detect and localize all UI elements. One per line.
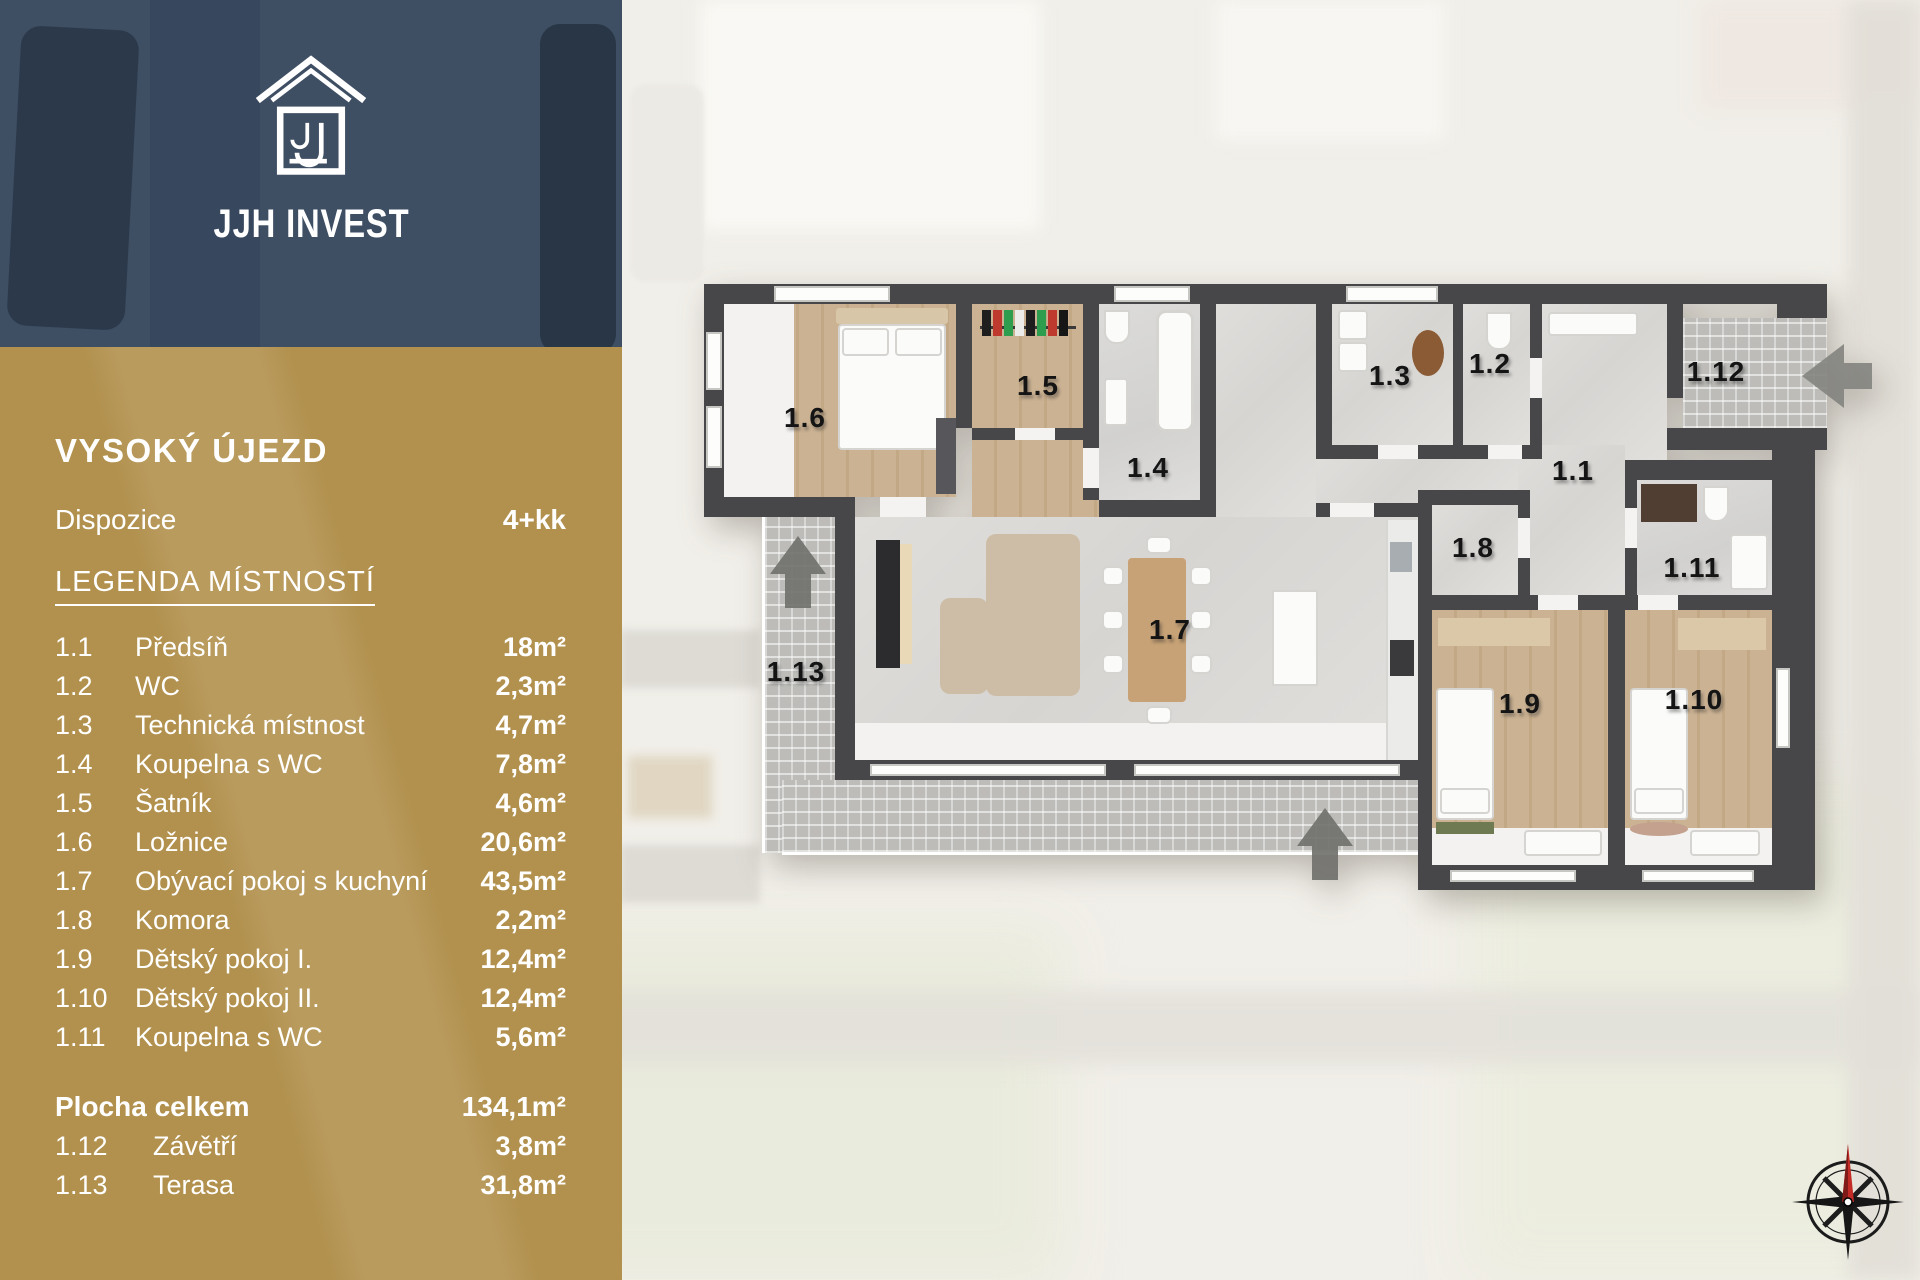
toilet xyxy=(1703,486,1729,522)
garden-entry-arrow-icon xyxy=(1297,808,1353,846)
house-logo-icon xyxy=(236,52,386,192)
room-1-7-window-sill xyxy=(855,723,1432,760)
brand-name: JJH INVEST xyxy=(213,202,409,247)
room-area: 18m² xyxy=(503,628,566,667)
window xyxy=(870,764,1106,776)
chair xyxy=(1102,610,1124,630)
wall xyxy=(1316,304,1332,445)
sidebar-logo-panel: JJH INVEST xyxy=(0,0,622,347)
legend-row: 1.9Dětský pokoj I.12,4m² xyxy=(55,940,566,979)
flyer-page: JJH INVEST VYSOKÝ ÚJEZD Dispozice 4+kk L… xyxy=(0,0,1920,1280)
window xyxy=(706,332,722,390)
main-entry-arrow-icon xyxy=(1802,344,1844,408)
aerial-roof xyxy=(700,0,1040,230)
stove xyxy=(1390,640,1414,676)
room-id: 1.12 xyxy=(55,1127,135,1166)
hanging-clothes xyxy=(1004,310,1013,336)
bathtub xyxy=(1156,310,1194,432)
toilet xyxy=(1486,312,1512,350)
room-label-1-6: 1.6 xyxy=(784,402,826,434)
sidebar-legend-panel: VYSOKÝ ÚJEZD Dispozice 4+kk LEGENDA MÍST… xyxy=(0,347,622,1280)
hall-cabinet xyxy=(1548,312,1638,336)
door-opening xyxy=(1015,428,1055,440)
room-id: 1.2 xyxy=(55,667,135,706)
aerial-car xyxy=(630,84,704,282)
sofa-chaise xyxy=(940,598,988,694)
room-id: 1.5 xyxy=(55,784,135,823)
room-label-1-9: 1.9 xyxy=(1499,688,1541,720)
wall xyxy=(1772,450,1815,865)
door-opening xyxy=(1518,518,1530,558)
room-label-1-5: 1.5 xyxy=(1017,370,1059,402)
legend-row: 1.7Obývací pokoj s kuchyní43,5m² xyxy=(55,862,566,901)
sofa xyxy=(986,534,1080,696)
hanging-clothes xyxy=(1037,310,1046,336)
legend-row: 1.2WC2,3m² xyxy=(55,667,566,706)
door-opening xyxy=(1083,448,1099,488)
window xyxy=(706,406,722,468)
room-area: 43,5m² xyxy=(480,862,566,901)
room-id: 1.10 xyxy=(55,979,135,1018)
room-area: 4,7m² xyxy=(495,706,566,745)
washbasin xyxy=(1104,378,1128,426)
wall xyxy=(1432,595,1815,610)
wardrobe xyxy=(936,418,956,494)
room-id: 1.4 xyxy=(55,745,135,784)
room-name: Obývací pokoj s kuchyní xyxy=(135,862,480,901)
hanging-clothes xyxy=(1015,310,1024,336)
legend-row-outdoor: 1.13Terasa31,8m² xyxy=(55,1166,566,1205)
dryer xyxy=(1338,342,1368,372)
kitchen-island xyxy=(1272,590,1318,686)
wall xyxy=(956,304,972,428)
legend-row: 1.10Dětský pokoj II.12,4m² xyxy=(55,979,566,1018)
bed-headboard xyxy=(836,308,948,324)
door-opening xyxy=(1330,503,1374,517)
room-1-6-entry xyxy=(724,304,794,497)
wall xyxy=(1625,460,1815,480)
hanging-clothes xyxy=(1059,310,1068,336)
room-id: 1.11 xyxy=(55,1018,135,1057)
room-name: Ložnice xyxy=(135,823,480,862)
total-value: 134,1m² xyxy=(462,1087,566,1127)
wall xyxy=(1432,490,1530,505)
room-label-1-8: 1.8 xyxy=(1452,532,1494,564)
hall-floor xyxy=(1216,304,1316,517)
window xyxy=(1776,668,1790,748)
chair xyxy=(1102,654,1124,674)
legend-row: 1.4Koupelna s WC7,8m² xyxy=(55,745,566,784)
wardrobe xyxy=(1678,618,1766,650)
legend-heading: LEGENDA MÍSTNOSTÍ xyxy=(55,566,375,606)
brand-logo: JJH INVEST xyxy=(0,52,622,247)
desk xyxy=(1524,830,1602,856)
dispozice-value: 4+kk xyxy=(503,504,566,536)
room-name: Terasa xyxy=(135,1166,480,1205)
aerial-roof xyxy=(1215,0,1445,140)
room-area: 3,8m² xyxy=(495,1127,566,1166)
room-label-1-1: 1.1 xyxy=(1552,455,1594,487)
bathroom-vanity xyxy=(1641,484,1697,522)
room-name: Koupelna s WC xyxy=(135,745,495,784)
wall xyxy=(835,497,855,780)
legend-row: 1.1Předsíň18m² xyxy=(55,628,566,667)
terrace-entry-arrow-stem xyxy=(785,574,811,608)
room-name: Předsíň xyxy=(135,628,503,667)
wall xyxy=(1777,304,1827,318)
desk xyxy=(1690,830,1760,856)
chair xyxy=(1146,536,1172,554)
legend-row: 1.8Komora2,2m² xyxy=(55,901,566,940)
wall xyxy=(1667,428,1827,450)
hanging-clothes xyxy=(993,310,1002,336)
room-label-1-13: 1.13 xyxy=(767,656,826,688)
room-label-1-12: 1.12 xyxy=(1687,356,1746,388)
tv-shelf xyxy=(900,544,912,664)
room-id: 1.6 xyxy=(55,823,135,862)
room-label-1-2: 1.2 xyxy=(1469,348,1511,380)
door-opening xyxy=(1625,508,1637,548)
main-entry-arrow-stem xyxy=(1844,363,1872,389)
window xyxy=(1346,286,1438,302)
room-area: 2,3m² xyxy=(495,667,566,706)
room-label-1-4: 1.4 xyxy=(1127,452,1169,484)
wall xyxy=(1200,304,1216,517)
room-id: 1.13 xyxy=(55,1166,135,1205)
room-area: 12,4m² xyxy=(480,940,566,979)
boiler xyxy=(1412,330,1444,376)
window xyxy=(774,286,890,302)
room-area: 5,6m² xyxy=(495,1018,566,1057)
room-id: 1.1 xyxy=(55,628,135,667)
bedside-rug xyxy=(1630,822,1688,836)
legend-content: VYSOKÝ ÚJEZD Dispozice 4+kk LEGENDA MÍST… xyxy=(55,432,566,1205)
pillow xyxy=(842,328,889,356)
room-label-1-10: 1.10 xyxy=(1665,684,1724,716)
window xyxy=(1134,764,1400,776)
hanging-clothes xyxy=(982,310,991,336)
garden-entry-arrow-stem xyxy=(1312,846,1338,880)
wall xyxy=(704,497,835,517)
wardrobe xyxy=(1438,618,1550,646)
door-opening xyxy=(1638,595,1678,610)
room-area: 2,2m² xyxy=(495,901,566,940)
chair xyxy=(1190,610,1212,630)
pillow xyxy=(1440,788,1490,814)
room-name: Koupelna s WC xyxy=(135,1018,495,1057)
legend-row-outdoor: 1.12Závětří3,8m² xyxy=(55,1127,566,1166)
room-area: 31,8m² xyxy=(480,1166,566,1205)
tv-panel xyxy=(876,540,900,668)
room-name: Dětský pokoj I. xyxy=(135,940,480,979)
terrace-entry-arrow-icon xyxy=(770,536,826,574)
floor-plan: 1.1 1.2 1.3 1.4 1.5 1.6 1.7 1.8 1.9 1.10… xyxy=(690,268,1880,918)
wall xyxy=(1418,490,1432,865)
door-opening xyxy=(1538,595,1578,610)
toilet xyxy=(1104,310,1130,344)
hanging-clothes xyxy=(1048,310,1057,336)
dispozice-row: Dispozice 4+kk xyxy=(55,504,566,536)
door-opening xyxy=(1488,445,1522,459)
room-label-1-7: 1.7 xyxy=(1149,614,1191,646)
bedside-rug xyxy=(1436,822,1494,834)
pillow xyxy=(1634,788,1684,814)
room-name: Komora xyxy=(135,901,495,940)
wall xyxy=(1667,304,1683,398)
chair xyxy=(1190,654,1212,674)
legend-row: 1.3Technická místnost4,7m² xyxy=(55,706,566,745)
project-title: VYSOKÝ ÚJEZD xyxy=(55,432,566,470)
corridor-floor xyxy=(972,440,1099,517)
room-area: 12,4m² xyxy=(480,979,566,1018)
window xyxy=(1114,286,1190,302)
wall xyxy=(1608,610,1625,865)
shower xyxy=(1730,534,1768,590)
aerial-roof xyxy=(1700,0,1920,110)
compass-icon xyxy=(1786,1140,1910,1264)
room-name: WC xyxy=(135,667,495,706)
room-id: 1.9 xyxy=(55,940,135,979)
door-opening xyxy=(1530,358,1542,398)
dispozice-label: Dispozice xyxy=(55,504,176,536)
room-label-1-11: 1.11 xyxy=(1664,552,1721,584)
room-name: Technická místnost xyxy=(135,706,495,745)
room-name: Šatník xyxy=(135,784,495,823)
total-row: Plocha celkem 134,1m² xyxy=(55,1087,566,1127)
chair xyxy=(1102,566,1124,586)
hanging-clothes xyxy=(1026,310,1035,336)
wall xyxy=(1099,500,1200,517)
room-id: 1.8 xyxy=(55,901,135,940)
total-label: Plocha celkem xyxy=(55,1087,250,1127)
washing-machine xyxy=(1338,310,1368,340)
legend-row: 1.11Koupelna s WC5,6m² xyxy=(55,1018,566,1057)
room-id: 1.7 xyxy=(55,862,135,901)
wall xyxy=(1453,304,1463,445)
legend-row: 1.6Ložnice20,6m² xyxy=(55,823,566,862)
room-area: 4,6m² xyxy=(495,784,566,823)
chair xyxy=(1190,566,1212,586)
window xyxy=(1450,870,1576,882)
kitchen-sink xyxy=(1390,542,1412,572)
room-area: 20,6m² xyxy=(480,823,566,862)
room-label-1-3: 1.3 xyxy=(1369,360,1411,392)
legend-row: 1.5Šatník4,6m² xyxy=(55,784,566,823)
room-area: 7,8m² xyxy=(495,745,566,784)
aerial-road xyxy=(520,990,1920,1065)
chair xyxy=(1146,706,1172,724)
door-opening xyxy=(1378,445,1418,459)
pillow xyxy=(895,328,942,356)
window xyxy=(1642,870,1754,882)
door-opening xyxy=(880,497,926,517)
room-id: 1.3 xyxy=(55,706,135,745)
room-name: Závětří xyxy=(135,1127,495,1166)
room-name: Dětský pokoj II. xyxy=(135,979,480,1018)
